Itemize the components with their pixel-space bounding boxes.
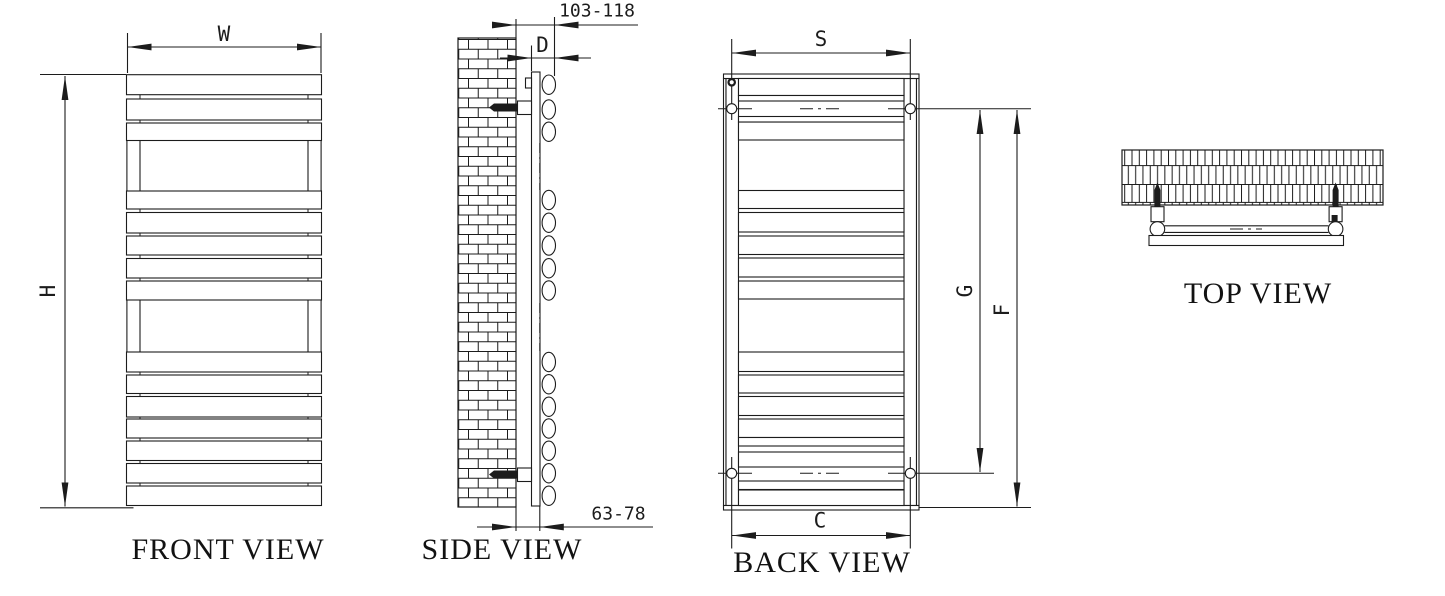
bracket-lock-nut bbox=[1332, 215, 1338, 222]
dimension-label-F: F bbox=[990, 304, 1014, 317]
anchor-screw bbox=[494, 104, 518, 112]
panel-oval bbox=[542, 236, 555, 255]
arrowhead bbox=[1014, 110, 1021, 134]
panel-oval bbox=[542, 441, 555, 460]
arrowhead bbox=[732, 50, 756, 57]
panel-oval bbox=[542, 397, 555, 416]
panel-oval bbox=[542, 375, 555, 394]
mounting-hole bbox=[905, 468, 915, 478]
right-side-plate bbox=[917, 79, 920, 506]
panel-oval bbox=[542, 122, 555, 141]
dimension-G: G bbox=[953, 110, 983, 472]
front-panel bbox=[127, 486, 322, 506]
collector-tube-bar bbox=[739, 117, 905, 123]
front-panel bbox=[127, 352, 322, 372]
back-bar bbox=[739, 452, 905, 467]
dimension-label-C: C bbox=[814, 509, 827, 533]
front-panel bbox=[127, 123, 322, 141]
back-bar bbox=[739, 375, 905, 393]
dimension-wall-to-rail: 63-78 bbox=[477, 504, 653, 532]
side-view: 103-118 D 63-78 SIDE VIEW bbox=[422, 1, 653, 567]
front-panel bbox=[127, 464, 322, 484]
back-view-title: BACK VIEW bbox=[733, 546, 911, 579]
back-bar bbox=[739, 79, 905, 96]
front-view-panels bbox=[127, 75, 322, 506]
arrowhead bbox=[886, 532, 910, 539]
arrowhead bbox=[508, 55, 532, 62]
mounting-hole bbox=[905, 104, 915, 114]
panel-oval bbox=[542, 100, 555, 119]
back-bar bbox=[739, 419, 905, 438]
front-view-title: FRONT VIEW bbox=[131, 533, 324, 566]
arrowhead bbox=[732, 532, 756, 539]
back-bar bbox=[739, 281, 905, 299]
panel-oval bbox=[542, 213, 555, 232]
air-vent-screw bbox=[729, 79, 735, 85]
collector-tube-bar bbox=[739, 96, 905, 102]
back-bar bbox=[739, 213, 905, 233]
front-panel bbox=[127, 259, 322, 279]
mounting-hole bbox=[727, 468, 737, 478]
panel-oval bbox=[542, 190, 555, 209]
arrowhead bbox=[555, 55, 579, 62]
anchor-screw bbox=[494, 471, 518, 479]
dimension-label-wall-to-front: 103-118 bbox=[559, 1, 635, 22]
arrowhead bbox=[555, 22, 579, 29]
mounting-hole bbox=[727, 104, 737, 114]
front-panel bbox=[127, 375, 322, 394]
wall-section bbox=[1122, 150, 1383, 205]
dimension-label-S: S bbox=[815, 27, 828, 51]
panel-oval bbox=[542, 486, 555, 505]
dimension-S: S bbox=[732, 27, 910, 56]
arrowhead bbox=[977, 448, 984, 472]
front-panel bbox=[127, 441, 322, 461]
front-panel bbox=[127, 191, 322, 209]
side-view-panel-ovals bbox=[542, 75, 555, 505]
panel-oval bbox=[542, 419, 555, 438]
dimension-label-W: W bbox=[218, 22, 231, 46]
drawing-sheet: W H FRONT VIEW bbox=[0, 0, 1445, 596]
front-panel bbox=[127, 99, 322, 120]
top-view-title: TOP VIEW bbox=[1184, 277, 1332, 310]
dimension-C: C bbox=[732, 509, 910, 539]
front-panel bbox=[127, 281, 322, 300]
valve-fitting bbox=[526, 78, 532, 88]
panel-cross-section bbox=[1149, 236, 1344, 246]
arrowhead bbox=[62, 76, 69, 100]
back-bar bbox=[739, 397, 905, 416]
back-bar bbox=[739, 236, 905, 255]
back-view-bars bbox=[739, 79, 905, 506]
dimension-label-H: H bbox=[36, 285, 60, 298]
left-side-rail bbox=[726, 79, 739, 506]
collector-tube-bar bbox=[739, 438, 905, 447]
dimension-F: F bbox=[990, 110, 1020, 507]
dimension-label-D: D bbox=[536, 33, 549, 57]
technical-drawing: W H FRONT VIEW bbox=[0, 0, 1445, 596]
arrowhead bbox=[492, 22, 516, 29]
back-bar bbox=[739, 258, 905, 277]
front-panel bbox=[127, 397, 322, 418]
right-side-rail bbox=[904, 79, 917, 506]
dimension-label-G: G bbox=[953, 285, 977, 298]
side-view-title: SIDE VIEW bbox=[422, 533, 583, 566]
collector-tube-bar bbox=[739, 481, 905, 490]
front-panel bbox=[127, 213, 322, 234]
back-bar bbox=[739, 352, 905, 372]
arrowhead bbox=[540, 524, 564, 531]
arrowhead bbox=[886, 50, 910, 57]
bracket-collar bbox=[518, 468, 532, 482]
panel-oval bbox=[542, 75, 555, 94]
front-view: W H FRONT VIEW bbox=[36, 22, 325, 566]
front-panel bbox=[127, 236, 322, 255]
back-bar bbox=[739, 122, 905, 140]
arrowhead bbox=[977, 110, 984, 134]
arrowhead bbox=[62, 483, 69, 507]
back-bar bbox=[739, 191, 905, 209]
back-bar bbox=[739, 490, 905, 506]
front-panel bbox=[127, 419, 322, 438]
dimension-H: H bbox=[36, 75, 134, 508]
arrowhead bbox=[128, 44, 152, 51]
bracket-collar bbox=[518, 101, 532, 115]
panel-oval bbox=[542, 281, 555, 300]
dimension-W: W bbox=[128, 22, 322, 73]
bracket-stem bbox=[1151, 207, 1164, 222]
back-view: S C G F BACK VIEW bbox=[718, 27, 1031, 579]
rail-cross-section bbox=[1328, 222, 1343, 237]
rail-cross-section bbox=[1150, 222, 1165, 237]
arrowhead bbox=[297, 44, 321, 51]
dimension-label-wall-to-rail: 63-78 bbox=[591, 504, 645, 525]
panel-oval bbox=[542, 259, 555, 278]
top-view: TOP VIEW bbox=[1122, 150, 1383, 310]
top-cap bbox=[724, 74, 920, 79]
arrowhead bbox=[492, 524, 516, 531]
panel-oval bbox=[542, 352, 555, 371]
side-rail-bar bbox=[532, 72, 541, 506]
panel-oval bbox=[542, 464, 555, 483]
front-panel bbox=[127, 75, 322, 95]
arrowhead bbox=[1014, 483, 1021, 507]
